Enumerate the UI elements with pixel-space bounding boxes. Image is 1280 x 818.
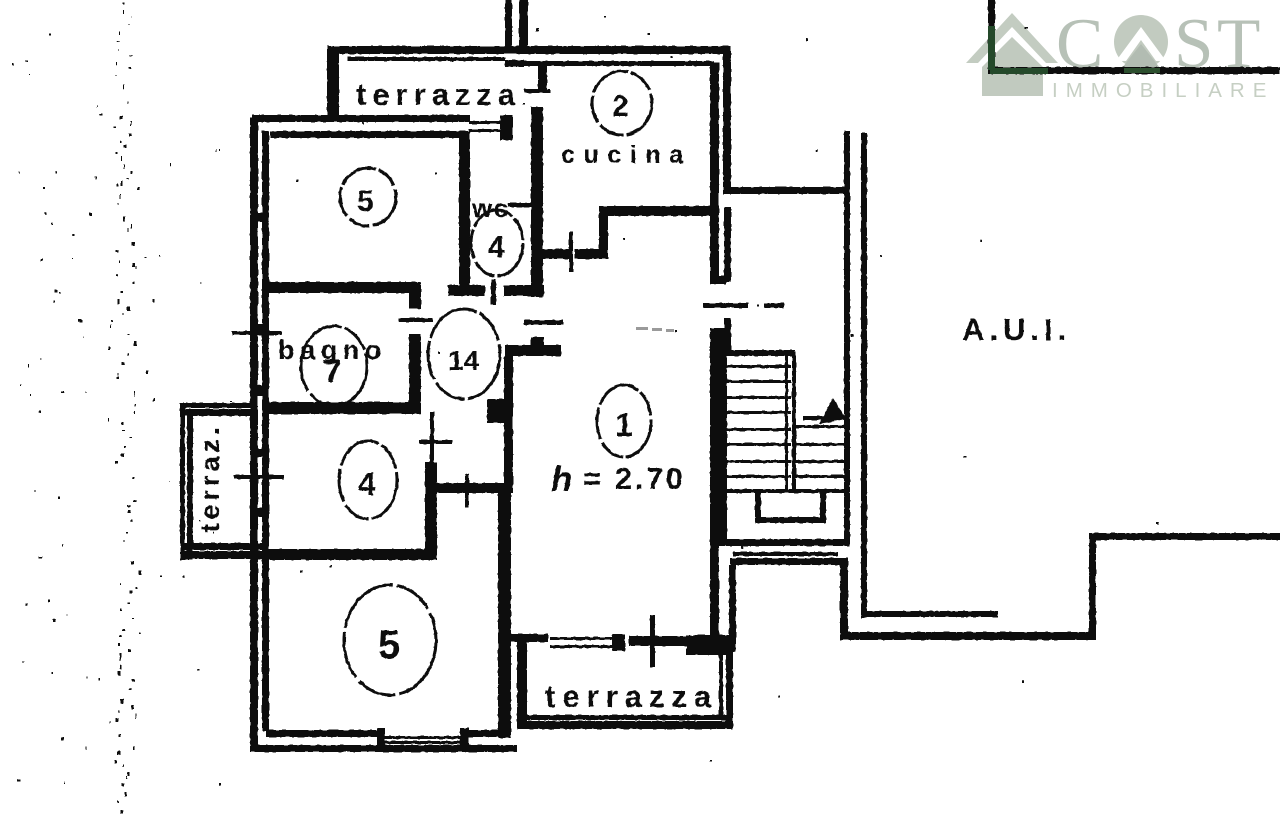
svg-text:2: 2 bbox=[612, 90, 629, 123]
svg-text:terraz.: terraz. bbox=[195, 423, 225, 532]
svg-text:terrazza: terrazza bbox=[545, 679, 718, 714]
svg-text:= 2.70: = 2.70 bbox=[583, 461, 686, 496]
svg-text:4: 4 bbox=[358, 466, 376, 502]
svg-text:A.U.I.: A.U.I. bbox=[962, 312, 1071, 347]
svg-text:7: 7 bbox=[324, 353, 342, 389]
svg-text:IMMOBILIARE: IMMOBILIARE bbox=[1052, 79, 1274, 102]
svg-text:4: 4 bbox=[488, 231, 505, 264]
svg-text:h: h bbox=[551, 460, 573, 499]
svg-text:5: 5 bbox=[378, 623, 400, 667]
svg-text:14: 14 bbox=[448, 345, 480, 376]
svg-text:terrazza: terrazza bbox=[356, 77, 521, 112]
svg-text:1: 1 bbox=[615, 407, 633, 443]
svg-text:wc: wc bbox=[471, 193, 510, 223]
svg-text:cucina: cucina bbox=[561, 141, 692, 169]
svg-text:5: 5 bbox=[357, 185, 374, 218]
